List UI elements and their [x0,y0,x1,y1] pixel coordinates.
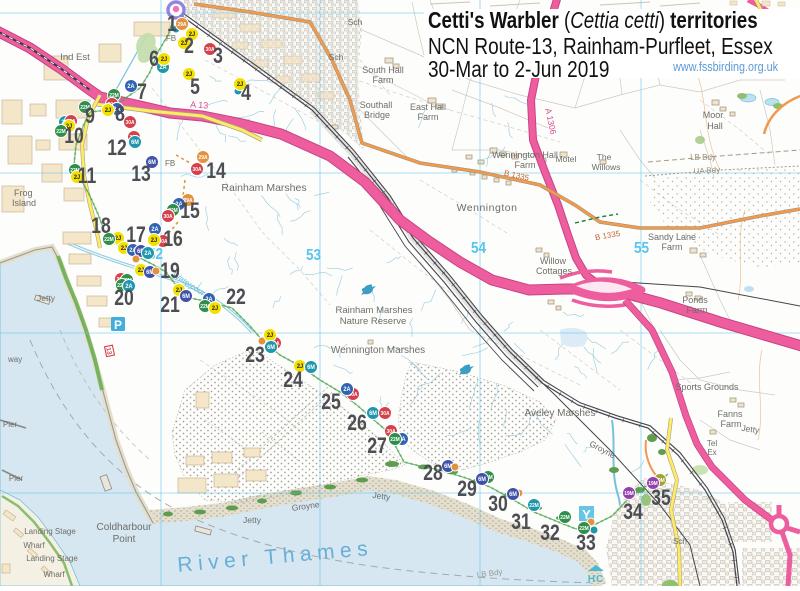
svg-text:32: 32 [540,521,560,545]
svg-text:Motel: Motel [556,154,577,164]
svg-text:15: 15 [180,199,200,223]
svg-text:FB: FB [165,159,175,168]
svg-text:2: 2 [184,34,194,58]
svg-text:6M: 6M [369,410,377,418]
svg-text:Tel: Tel [707,439,717,448]
svg-text:Pier: Pier [3,420,18,429]
svg-text:3: 3 [213,44,223,68]
svg-text:30-Mar to 2-Jun 2019: 30-Mar to 2-Jun 2019 [428,57,609,82]
svg-text:2J: 2J [161,56,167,64]
svg-text:Farm: Farm [373,75,394,85]
svg-text:Sch: Sch [329,52,344,62]
svg-text:2J: 2J [105,107,111,115]
svg-text:Southall: Southall [360,100,393,110]
svg-text:Farm: Farm [515,160,536,170]
svg-text:33: 33 [576,531,596,555]
svg-text:Island: Island [12,198,36,208]
svg-text:34: 34 [623,500,643,524]
svg-text:10: 10 [64,124,84,148]
svg-text:Sch: Sch [348,17,363,27]
svg-text:Bridge: Bridge [364,110,390,120]
svg-text:Sports Grounds: Sports Grounds [675,382,739,392]
svg-text:19M: 19M [624,491,634,497]
svg-text:6: 6 [149,47,159,71]
svg-text:6M: 6M [509,491,517,499]
svg-text:29A: 29A [177,22,186,28]
svg-text:Fanns: Fanns [717,409,743,419]
svg-text:9: 9 [85,104,95,128]
svg-text:A 13: A 13 [190,99,209,110]
svg-text:The: The [597,152,612,162]
svg-text:6M: 6M [131,139,139,147]
svg-text:7: 7 [137,80,147,104]
svg-text:2A: 2A [127,83,135,91]
svg-text:19: 19 [160,259,180,283]
svg-text:Wennington Marshes: Wennington Marshes [331,345,425,356]
svg-text:6M: 6M [182,293,190,301]
svg-text:6M: 6M [267,344,275,352]
svg-text:22M: 22M [529,503,539,509]
svg-text:Landing Stage: Landing Stage [26,554,78,563]
svg-text:Moor: Moor [703,110,724,120]
svg-text:2J: 2J [267,332,273,340]
svg-text:Coldharbour: Coldharbour [96,522,152,533]
svg-text:2J: 2J [151,237,157,245]
svg-text:East Hall: East Hall [410,102,446,112]
svg-text:way: way [7,355,22,364]
svg-text:Jetty: Jetty [243,515,262,525]
svg-text:24: 24 [283,368,303,392]
svg-text:30: 30 [488,492,508,516]
svg-text:28: 28 [423,461,443,485]
svg-text:25: 25 [321,390,341,414]
svg-text:5: 5 [190,75,200,99]
svg-text:14: 14 [206,159,226,183]
svg-text:30A: 30A [125,120,134,126]
svg-text:22M: 22M [390,437,400,443]
svg-text:23: 23 [245,343,265,367]
svg-text:21: 21 [160,293,180,317]
svg-text:Willow: Willow [540,256,566,266]
svg-text:22M: 22M [560,515,570,521]
svg-text:16: 16 [163,227,183,251]
svg-text:Farm: Farm [687,305,708,315]
svg-text:Rainham Marshes: Rainham Marshes [221,182,306,194]
svg-text:31: 31 [511,510,531,534]
svg-text:53: 53 [306,247,321,264]
svg-text:55: 55 [634,240,649,257]
svg-text:Ind Est: Ind Est [60,52,90,63]
svg-text:Frog: Frog [14,188,33,198]
svg-text:Willows: Willows [592,162,621,172]
svg-text:Wharf: Wharf [43,570,65,579]
svg-text:1: 1 [167,12,177,36]
svg-text:Cetti's Warbler (Cettia cetti): Cetti's Warbler (Cettia cetti) territori… [428,8,758,33]
svg-text:Jetty: Jetty [37,293,56,303]
svg-text:Pier: Pier [9,474,24,483]
svg-text:12: 12 [107,136,127,160]
svg-text:54: 54 [471,240,487,257]
svg-text:Ponds: Ponds [682,295,708,305]
svg-text:Wennington: Wennington [457,202,518,214]
svg-text:20: 20 [114,286,134,310]
svg-text:18: 18 [91,214,111,238]
svg-text:2A: 2A [151,226,159,234]
svg-text:Ex: Ex [707,448,716,457]
svg-text:Farm: Farm [662,242,683,252]
svg-text:2A: 2A [144,250,152,258]
svg-text:LB Bdy: LB Bdy [690,153,716,162]
svg-text:29: 29 [457,477,477,501]
svg-text:Sch: Sch [673,537,687,546]
svg-text:Nature Reserve: Nature Reserve [340,316,407,327]
svg-text:Point: Point [113,534,136,545]
svg-text:4: 4 [241,81,251,105]
svg-text:11: 11 [78,164,97,188]
svg-text:Rainham Marshes: Rainham Marshes [335,305,412,316]
svg-text:27: 27 [367,434,387,458]
svg-text:Farm: Farm [418,112,439,122]
svg-text:2A: 2A [343,386,351,394]
svg-text:www.fssbirding.org.uk: www.fssbirding.org.uk [672,59,778,74]
svg-text:30A: 30A [380,411,389,417]
svg-text:Farm: Farm [721,419,742,429]
svg-text:13: 13 [131,162,151,186]
svg-text:South Hall: South Hall [362,65,404,75]
svg-text:Hall: Hall [707,121,723,131]
svg-text:6M: 6M [478,476,486,484]
svg-text:Wennington Hall: Wennington Hall [492,150,558,160]
svg-text:2J: 2J [212,305,218,313]
svg-text:UA Bdy: UA Bdy [693,165,720,176]
svg-text:30A: 30A [163,214,172,220]
svg-text:Wharf: Wharf [23,541,45,550]
svg-text:30A: 30A [192,167,201,173]
svg-text:Sandy Lane: Sandy Lane [648,232,696,242]
svg-text:35: 35 [651,486,671,510]
svg-text:22: 22 [226,285,246,309]
svg-text:6M: 6M [307,364,315,372]
svg-text:Landing Stage: Landing Stage [24,527,76,536]
svg-text:Aveley Marshes: Aveley Marshes [525,408,596,419]
svg-text:HC: HC [588,574,604,585]
svg-text:P: P [114,318,122,332]
svg-text:Cottages: Cottages [536,266,573,276]
svg-text:26: 26 [347,411,367,435]
svg-text:NCN Route-13, Rainham-Purfleet: NCN Route-13, Rainham-Purfleet, Essex [428,34,773,59]
